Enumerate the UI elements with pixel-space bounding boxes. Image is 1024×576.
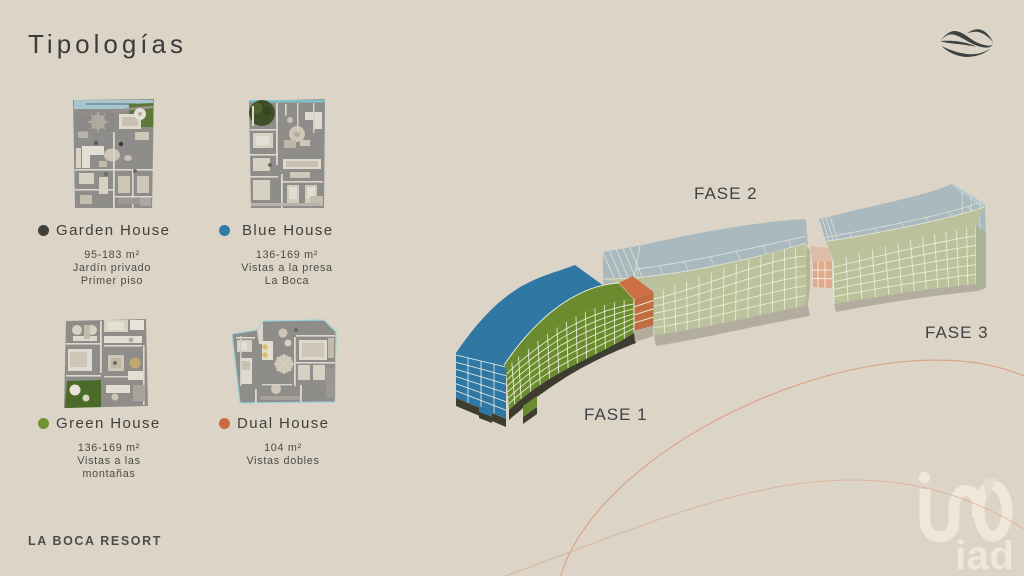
svg-text:iad: iad bbox=[955, 534, 1014, 576]
